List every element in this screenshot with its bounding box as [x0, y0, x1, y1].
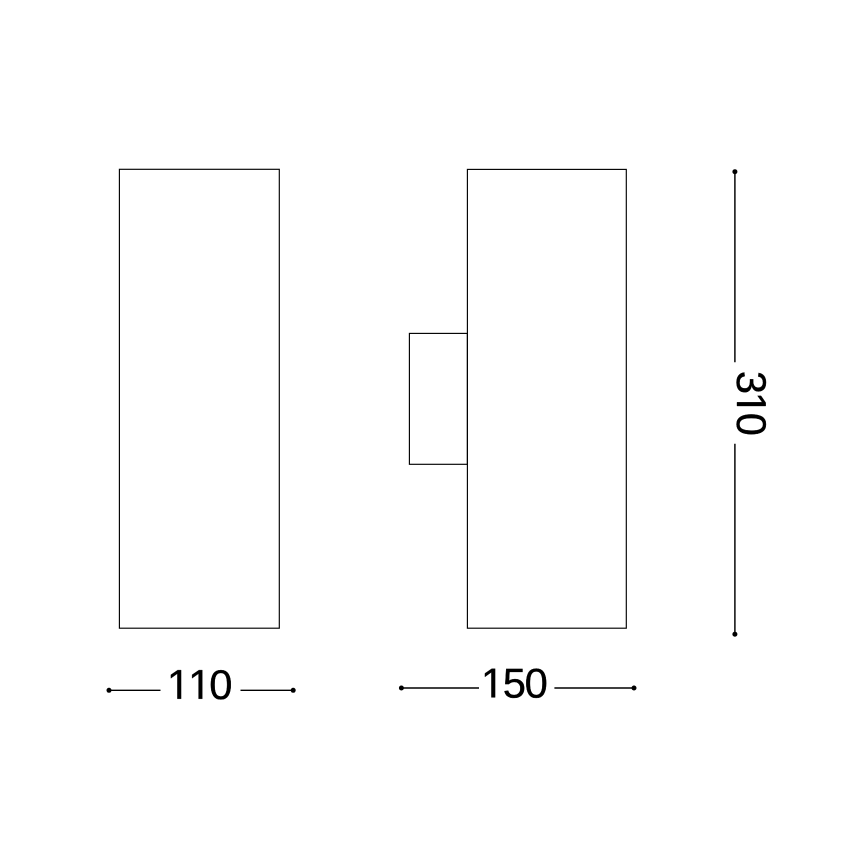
svg-text:0: 0 — [209, 661, 232, 708]
svg-text:0: 0 — [525, 659, 548, 706]
svg-text:0: 0 — [728, 413, 775, 436]
svg-text:5: 5 — [503, 659, 526, 706]
svg-text:3: 3 — [728, 371, 775, 394]
